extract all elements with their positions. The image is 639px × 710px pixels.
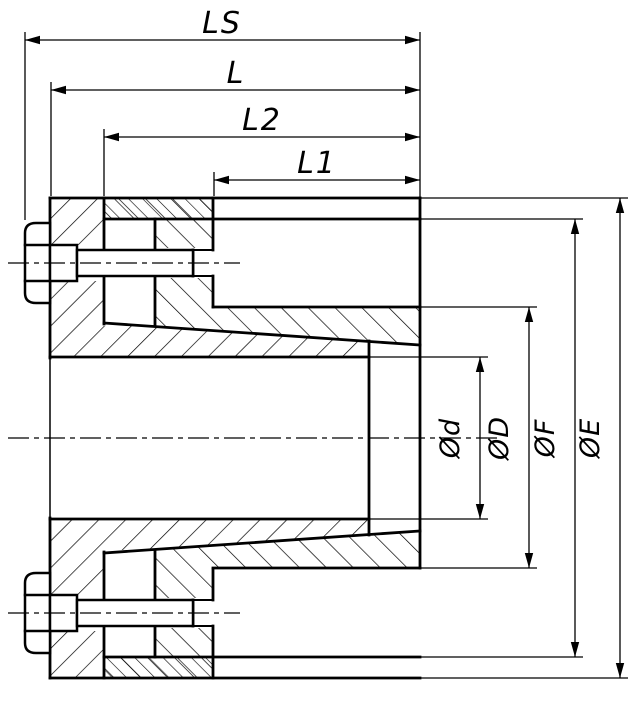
label-ls: LS [202,6,242,41]
rim-band-lower-section [104,657,213,678]
label-l: L [227,56,246,91]
label-dia-e: ØE [575,418,606,459]
dimension-labels: LS L L2 L1 Ød ØD ØF ØE [202,6,606,461]
label-l2: L2 [242,103,282,138]
technical-drawing: LS L L2 L1 Ød ØD ØF ØE [0,0,639,710]
rim-band-upper-section [104,198,213,219]
label-dia-d-big: ØD [484,416,515,461]
drawing-canvas: LS L L2 L1 Ød ØD ØF ØE [0,0,639,710]
label-l1: L1 [297,146,337,181]
label-dia-d-small: Ød [435,418,466,459]
label-dia-f: ØF [530,419,561,459]
